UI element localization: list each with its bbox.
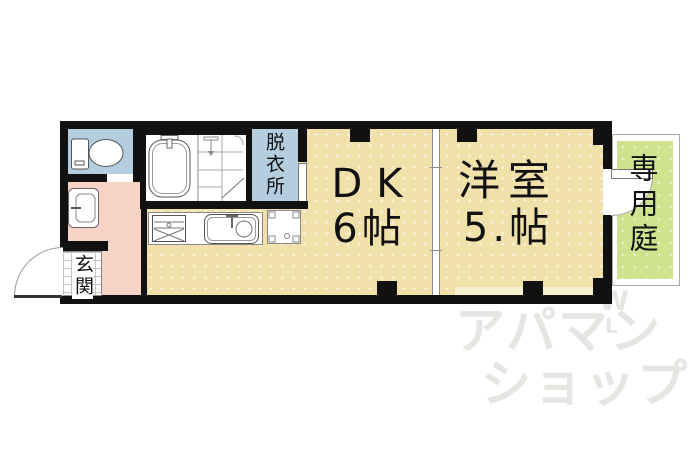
toilet-door-opening <box>107 174 133 182</box>
pillar-top-dk <box>350 129 370 142</box>
entrance-door-arc <box>14 247 63 296</box>
bathroom <box>140 129 252 207</box>
entrance-top-wall <box>60 241 108 251</box>
western-room-label: 洋室 5.帖 <box>438 158 578 252</box>
pillar-bottom-right <box>593 278 612 304</box>
top-wall <box>60 121 612 129</box>
dk-room-label: DK 6帖 <box>303 162 435 252</box>
watermark-line2: ショップ <box>481 344 689 416</box>
bathtub-icon <box>146 135 246 201</box>
washing-machine-pan-icon <box>267 210 301 244</box>
garden-label: 専用庭 <box>627 153 656 258</box>
dk-name: DK <box>303 162 435 206</box>
toilet-wall <box>68 174 107 182</box>
bath-dressing-bottom-wall <box>140 201 308 209</box>
pillar-top-right <box>593 121 612 145</box>
entrance-door-leaf <box>14 295 62 298</box>
entrance-label: 玄関 <box>72 253 93 299</box>
watermark-mark-bottom: L <box>605 314 620 338</box>
pillar-top-western <box>457 129 477 142</box>
floorplan: アパマン W L ショップ <box>0 0 690 460</box>
left-wall <box>60 121 68 248</box>
gas-stove-icon <box>152 215 186 242</box>
pillar-bottom-dk <box>377 281 397 295</box>
western-name: 洋室 <box>438 158 578 204</box>
washbasin-icon <box>68 188 99 228</box>
dk-size: 6帖 <box>303 206 435 252</box>
kitchen-sink-icon <box>204 214 259 244</box>
bottom-wall <box>60 295 612 304</box>
toilet-bath-wall <box>133 129 140 182</box>
western-size: 5.帖 <box>438 204 578 252</box>
hall-dk-wall <box>141 201 147 296</box>
dressing-room-label: 脱衣所 <box>264 132 283 198</box>
pillar-bottom-western <box>523 281 543 295</box>
toilet-fixture-icon <box>70 136 126 172</box>
